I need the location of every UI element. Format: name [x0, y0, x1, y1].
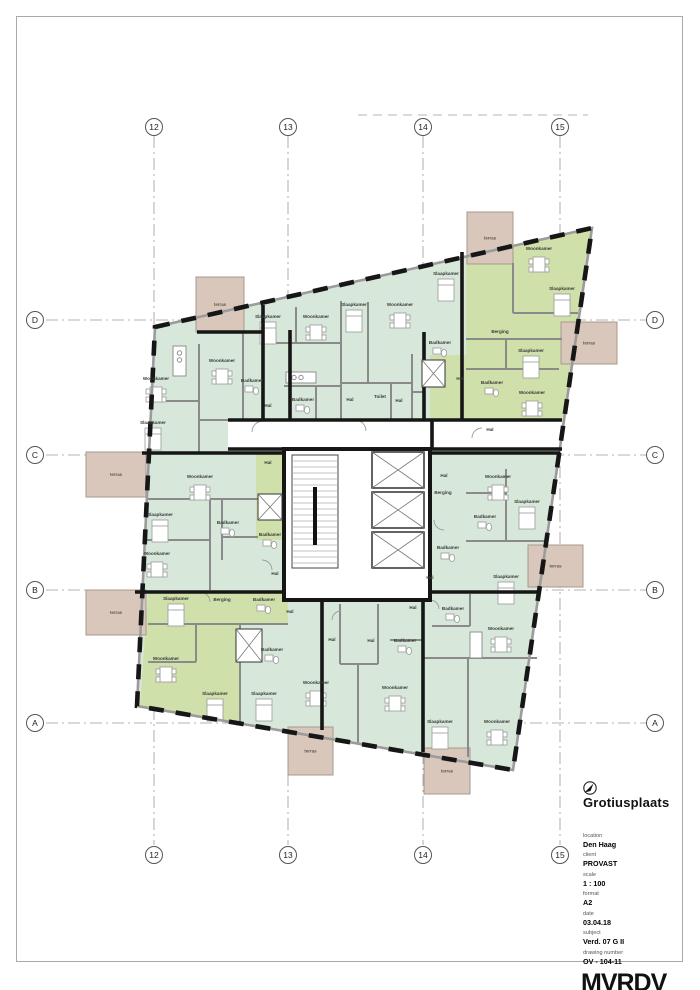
toilet	[273, 656, 278, 663]
staircase	[292, 455, 338, 568]
chair	[162, 397, 166, 402]
chair	[146, 389, 150, 394]
chair	[147, 564, 151, 569]
terrace-label: terras	[583, 341, 596, 346]
room-label: Slaapkamer	[147, 512, 173, 517]
room-label: Slaapkamer	[493, 574, 519, 579]
table	[216, 369, 228, 384]
room-label: Woonkamer	[484, 719, 510, 724]
chair	[190, 495, 194, 500]
room-label: Woonkamer	[153, 656, 179, 661]
chair	[390, 315, 394, 320]
room-label: Berging	[434, 490, 452, 495]
room-label: Woonkamer	[526, 246, 552, 251]
room-label: Hal	[409, 605, 416, 610]
chair	[212, 371, 216, 376]
grid-bubble-label: 12	[149, 122, 159, 132]
bed	[554, 294, 570, 316]
bed	[168, 604, 184, 626]
corridor-gallery	[228, 420, 562, 449]
room-label: Badkamer	[442, 606, 464, 611]
chair	[406, 323, 410, 328]
grid-bubble-label: C	[652, 450, 658, 460]
grid-bubble-label: A	[652, 718, 658, 728]
bed	[432, 727, 448, 749]
chair	[385, 706, 389, 711]
table	[492, 485, 504, 500]
grid-bubble-label: 12	[149, 850, 159, 860]
terrace-label: terras	[214, 302, 227, 307]
table	[495, 637, 507, 652]
room-label: Badkamer	[241, 378, 263, 383]
room-label: Badkamer	[437, 545, 459, 550]
room-label: Hal	[426, 575, 433, 580]
room-label: Woonkamer	[144, 551, 170, 556]
room-label: Badkamer	[292, 397, 314, 402]
chair	[162, 389, 166, 394]
room-label: Slaapkamer	[140, 420, 166, 425]
grid-bubble-label: 13	[283, 122, 293, 132]
elevator-shafts	[372, 452, 424, 568]
room-label: Hal	[328, 637, 335, 642]
room-label: Woonkamer	[519, 390, 545, 395]
field-scale: scale 1 : 100	[583, 872, 683, 888]
table	[491, 730, 503, 745]
room-label: Badkamer	[259, 532, 281, 537]
chair	[503, 740, 507, 745]
room-label: Woonkamer	[488, 626, 514, 631]
field-date: date 03.04.18	[583, 911, 683, 927]
room-label: Slaapkamer	[255, 314, 281, 319]
room-label: Badkamer	[474, 514, 496, 519]
room-label: Slaapkamer	[514, 499, 540, 504]
chair	[163, 572, 167, 577]
sink	[245, 386, 253, 392]
chair	[163, 564, 167, 569]
table	[160, 667, 172, 682]
bed	[523, 356, 539, 378]
toilet	[406, 647, 411, 654]
toilet	[229, 529, 234, 536]
toilet	[253, 387, 258, 394]
bed	[438, 279, 454, 301]
chair	[503, 732, 507, 737]
room-label: Slaapkamer	[427, 719, 453, 724]
sink	[446, 614, 454, 620]
chair	[385, 698, 389, 703]
chair	[487, 732, 491, 737]
chair	[504, 487, 508, 492]
field-subject: subject Verd. 07 G II	[583, 930, 683, 946]
room-label: Woonkamer	[303, 314, 329, 319]
terrace-label: terras	[110, 610, 123, 615]
grid-bubble-label: B	[32, 585, 38, 595]
field-drawing-number: drawing number OV - 104-11	[583, 950, 683, 966]
grid-bubble-label: 14	[418, 122, 428, 132]
room-label: Hal	[264, 403, 271, 408]
grid-bubble-label: D	[32, 315, 38, 325]
room-label: Slaapkamer	[518, 348, 544, 353]
bed	[152, 520, 168, 542]
room-label: Badkamer	[253, 597, 275, 602]
chair	[522, 403, 526, 408]
room-label: Woonkamer	[387, 302, 413, 307]
room-label: Hal	[286, 609, 293, 614]
grid-bubble-label: D	[652, 315, 658, 325]
room-label: Woonkamer	[485, 474, 511, 479]
toilet	[486, 523, 491, 530]
sink	[478, 522, 486, 528]
grid-bubble-label: B	[652, 585, 658, 595]
room-label: Slaapkamer	[251, 691, 277, 696]
chair	[228, 371, 232, 376]
room-label: Badkamer	[481, 380, 503, 385]
room-label: Slaapkamer	[202, 691, 228, 696]
chair	[206, 487, 210, 492]
room-label: Toilet	[374, 394, 386, 399]
chair	[545, 259, 549, 264]
sink	[263, 540, 271, 546]
mvrdv-logo: MVRDV	[581, 969, 683, 990]
room-label: Slaapkamer	[341, 302, 367, 307]
chair	[306, 327, 310, 332]
grid-bubble-label: 15	[555, 122, 565, 132]
room-label: Woonkamer	[143, 376, 169, 381]
table	[526, 401, 538, 416]
sink	[441, 553, 449, 559]
sink	[265, 655, 273, 661]
toilet	[304, 406, 309, 413]
room-label: Woonkamer	[187, 474, 213, 479]
grid-bubble-label: C	[32, 450, 38, 460]
chair	[507, 647, 511, 652]
room-label: Badkamer	[394, 638, 416, 643]
sink	[485, 388, 493, 394]
chair	[529, 267, 533, 272]
room-label: Badkamer	[429, 340, 451, 345]
field-format: format A2	[583, 891, 683, 907]
field-client: client PROVAST	[583, 852, 683, 868]
terrace-label: terras	[441, 769, 454, 774]
room-label: Berging	[213, 597, 231, 602]
toilet	[441, 349, 446, 356]
chair	[538, 411, 542, 416]
room-label: Berging	[491, 329, 509, 334]
room-label: Hal	[367, 638, 374, 643]
chair	[491, 647, 495, 652]
toilet	[454, 615, 459, 622]
sink	[257, 605, 265, 611]
chair	[156, 669, 160, 674]
chair	[306, 693, 310, 698]
chair	[306, 701, 310, 706]
chair	[322, 335, 326, 340]
room-label: Slaapkamer	[549, 286, 575, 291]
chair	[206, 495, 210, 500]
toilet	[493, 389, 498, 396]
room-label: Hal	[440, 473, 447, 478]
grid-bubble-label: 13	[283, 850, 293, 860]
table	[533, 257, 545, 272]
chair	[172, 677, 176, 682]
bed	[145, 428, 161, 450]
chair	[306, 335, 310, 340]
chair	[190, 487, 194, 492]
chair	[487, 740, 491, 745]
bed	[346, 310, 362, 332]
chair	[322, 327, 326, 332]
bed	[256, 699, 272, 721]
room-label: Badkamer	[217, 520, 239, 525]
room-label: Slaapkamer	[433, 271, 459, 276]
bed	[519, 507, 535, 529]
chair	[390, 323, 394, 328]
chair	[491, 639, 495, 644]
chair	[156, 677, 160, 682]
chair	[228, 379, 232, 384]
toilet	[449, 554, 454, 561]
terrace-label: terras	[549, 564, 562, 569]
grid-bubble-label: 15	[555, 850, 565, 860]
chair	[538, 403, 542, 408]
room-label: Hal	[456, 376, 463, 381]
room-label: Woonkamer	[382, 685, 408, 690]
table	[194, 485, 206, 500]
sink	[433, 348, 441, 354]
sink	[296, 405, 304, 411]
drawing-sheet: terrasterrasterrasterrasterrasterrasterr…	[0, 0, 700, 990]
grid-bubble-label: A	[32, 718, 38, 728]
north-arrow-icon	[584, 782, 596, 794]
room-label: Hal	[271, 571, 278, 576]
field-location: location Den Haag	[583, 833, 683, 849]
room-label: Slaapkamer	[163, 596, 189, 601]
chair	[401, 706, 405, 711]
terrace-label: terras	[110, 472, 123, 477]
grid-bubble-label: 14	[418, 850, 428, 860]
chair	[212, 379, 216, 384]
terrace-label: terras	[304, 749, 317, 754]
chair	[172, 669, 176, 674]
chair	[147, 572, 151, 577]
room-label: Hal	[395, 398, 402, 403]
drawing-title: Grotiusplaats	[583, 795, 683, 810]
room-label: Hal	[486, 427, 493, 432]
chair	[488, 487, 492, 492]
chair	[504, 495, 508, 500]
chair	[522, 411, 526, 416]
sink	[398, 646, 406, 652]
table	[389, 696, 401, 711]
chair	[545, 267, 549, 272]
room-label: Hal	[264, 460, 271, 465]
table	[310, 325, 322, 340]
toilet	[271, 541, 276, 548]
chair	[401, 698, 405, 703]
room-label: Woonkamer	[209, 358, 235, 363]
terrace-label: terras	[484, 236, 497, 241]
chair	[488, 495, 492, 500]
toilet	[265, 606, 270, 613]
table	[151, 562, 163, 577]
table	[394, 313, 406, 328]
title-block: Grotiusplaats location Den Haag client P…	[583, 795, 683, 990]
building-plan: terrasterrasterrasterrasterrasterrasterr…	[86, 212, 617, 794]
sink	[221, 528, 229, 534]
room-label: Badkamer	[261, 647, 283, 652]
room-label: Hal	[346, 397, 353, 402]
chair	[529, 259, 533, 264]
chair	[507, 639, 511, 644]
chair	[406, 315, 410, 320]
room-label: Woonkamer	[303, 680, 329, 685]
